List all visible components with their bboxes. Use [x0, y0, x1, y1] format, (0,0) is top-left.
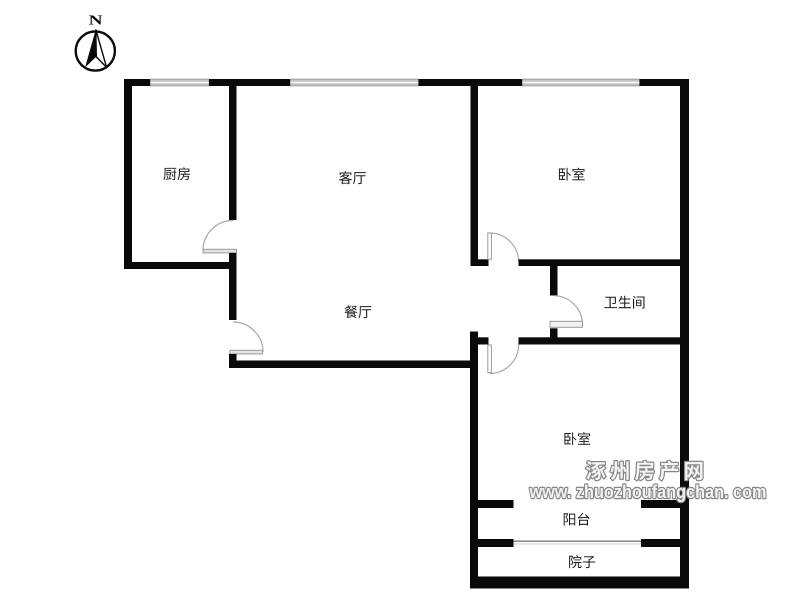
svg-text:N: N: [89, 12, 103, 28]
svg-text:www. zhuozhoufangchan. com: www. zhuozhoufangchan. com: [529, 481, 767, 502]
